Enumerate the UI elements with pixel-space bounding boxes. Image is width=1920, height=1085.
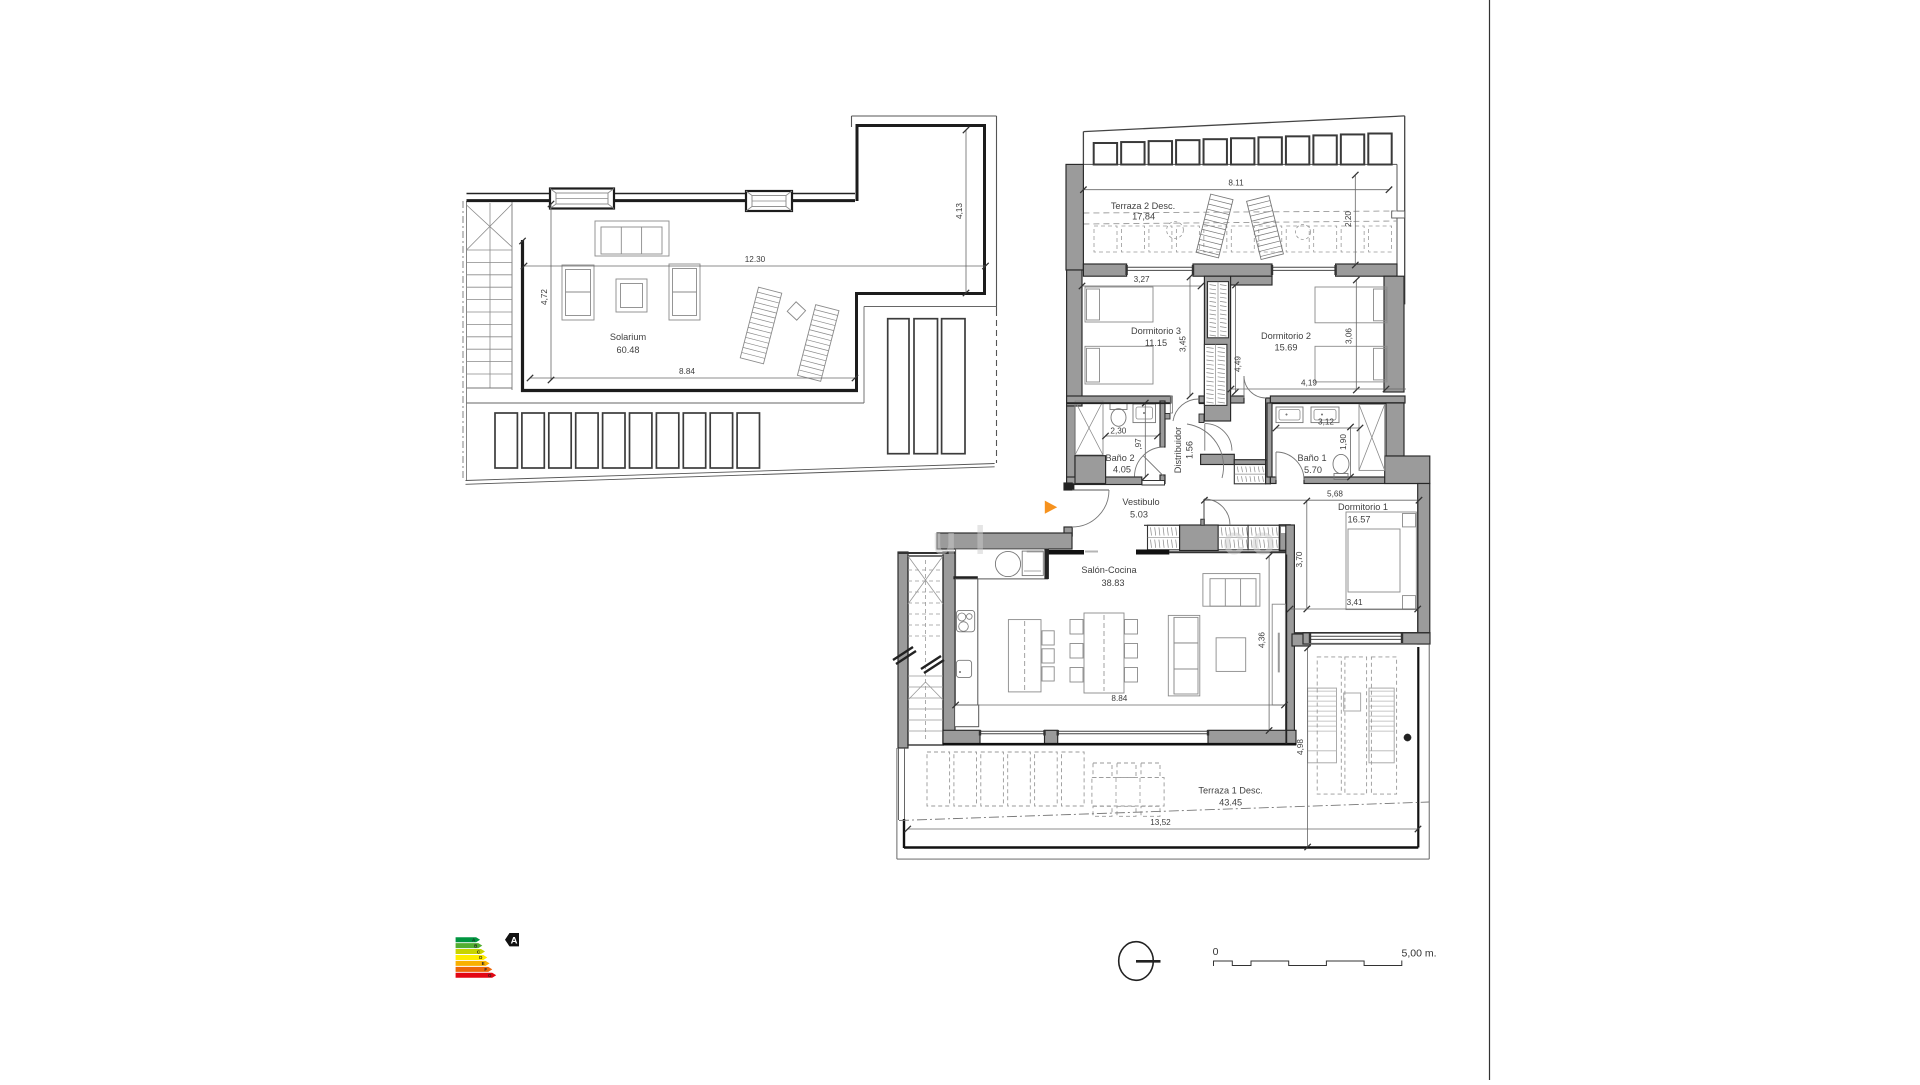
svg-text:16.57: 16.57 xyxy=(1348,515,1371,525)
svg-text:Salón-Cocina: Salón-Cocina xyxy=(1081,565,1137,575)
svg-text:Solarium: Solarium xyxy=(610,332,647,342)
svg-text:3,41: 3,41 xyxy=(1347,598,1363,607)
svg-text:43.45: 43.45 xyxy=(1219,798,1242,808)
svg-text:Dormitorio 1: Dormitorio 1 xyxy=(1338,502,1388,512)
svg-text:5.03: 5.03 xyxy=(1130,510,1148,520)
svg-text:co: co xyxy=(1223,519,1282,563)
svg-text:38.83: 38.83 xyxy=(1102,578,1125,588)
svg-text:4,72: 4,72 xyxy=(540,289,549,305)
svg-text:3,12: 3,12 xyxy=(1318,418,1334,427)
svg-text:Baño 1: Baño 1 xyxy=(1297,453,1326,463)
svg-text:11.15: 11.15 xyxy=(1145,338,1167,348)
svg-text:Terraza 2 Desc.: Terraza 2 Desc. xyxy=(1111,201,1175,211)
svg-text:3,70: 3,70 xyxy=(1295,551,1304,567)
svg-text:Dormitorio 3: Dormitorio 3 xyxy=(1131,326,1181,336)
svg-text:Terraza 1 Desc.: Terraza 1 Desc. xyxy=(1198,786,1262,796)
svg-text:5.70: 5.70 xyxy=(1304,465,1322,475)
svg-text:4,98: 4,98 xyxy=(1296,739,1305,755)
svg-text:4,49: 4,49 xyxy=(1234,356,1243,372)
svg-text:4,19: 4,19 xyxy=(1301,379,1317,388)
svg-text:G: G xyxy=(488,973,492,978)
svg-text:3,06: 3,06 xyxy=(1345,328,1354,344)
svg-text:A: A xyxy=(511,935,518,946)
svg-text:3,45: 3,45 xyxy=(1178,336,1187,352)
svg-text:Baño 2: Baño 2 xyxy=(1105,453,1134,463)
svg-text:5,00 m.: 5,00 m. xyxy=(1401,948,1436,960)
svg-text:ul: ul xyxy=(932,519,1004,563)
svg-text:8.84: 8.84 xyxy=(1111,694,1127,703)
svg-text:13,52: 13,52 xyxy=(1150,818,1171,827)
svg-text:60.48: 60.48 xyxy=(617,345,640,355)
svg-text:3,27: 3,27 xyxy=(1134,275,1150,284)
svg-text:2,20: 2,20 xyxy=(1344,211,1353,227)
svg-text:4,13: 4,13 xyxy=(955,203,964,219)
svg-text:4,36: 4,36 xyxy=(1258,632,1267,648)
svg-text:1,90: 1,90 xyxy=(1339,434,1348,450)
svg-text:F: F xyxy=(484,967,487,972)
svg-text:8.84: 8.84 xyxy=(679,367,695,376)
svg-text:Dormitorio 2: Dormitorio 2 xyxy=(1261,331,1311,341)
svg-text:15.69: 15.69 xyxy=(1275,343,1298,353)
svg-text:4.05: 4.05 xyxy=(1113,465,1131,475)
svg-text:8.11: 8.11 xyxy=(1228,179,1244,188)
svg-text:,97: ,97 xyxy=(1134,438,1143,450)
svg-text:Distribuidor: Distribuidor xyxy=(1173,427,1183,473)
svg-text:E: E xyxy=(482,961,485,966)
svg-text:2,30: 2,30 xyxy=(1110,427,1126,436)
svg-text:0: 0 xyxy=(1213,946,1219,958)
svg-text:12.30: 12.30 xyxy=(745,255,766,264)
svg-text:1.56: 1.56 xyxy=(1185,441,1195,459)
svg-text:17,84: 17,84 xyxy=(1132,212,1155,222)
svg-text:5,68: 5,68 xyxy=(1327,490,1343,499)
svg-text:Vestibulo: Vestibulo xyxy=(1122,497,1159,507)
